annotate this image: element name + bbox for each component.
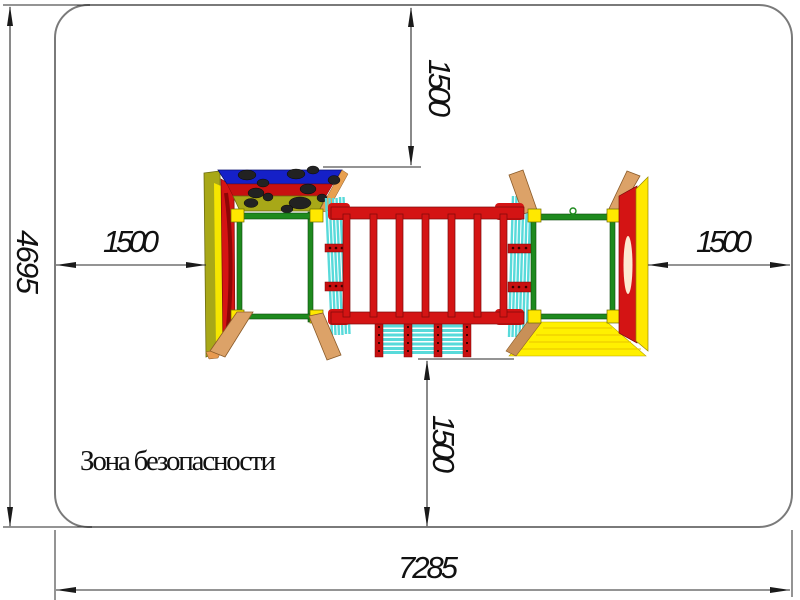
arrow-up-icon — [424, 360, 430, 380]
dim-clearance-right: 1500 — [648, 224, 790, 268]
dim-text-clearance-left: 1500 — [103, 224, 159, 259]
dim-overall-width: 7285 — [56, 550, 790, 593]
arrow-left-icon — [56, 587, 76, 593]
bridge-slats — [379, 326, 469, 353]
drawing-sheet: 4695 1500 1500 1500 1500 7285 Зона безоп… — [0, 0, 800, 600]
ladder-rungs — [343, 214, 507, 317]
dim-clearance-left: 1500 — [56, 224, 206, 268]
dim-clearance-bottom: 1500 — [424, 360, 461, 527]
arrow-left-icon — [56, 262, 76, 268]
dim-clearance-top: 1500 — [408, 7, 457, 166]
right-tower-panel-highlight — [624, 236, 633, 294]
left-tower — [204, 166, 350, 360]
arrow-down-icon — [7, 507, 13, 527]
dim-text-clearance-right: 1500 — [696, 224, 752, 259]
dim-text-clearance-bottom: 1500 — [426, 415, 461, 473]
dim-text-overall-width: 7285 — [398, 550, 459, 585]
left-tower-roof-red — [227, 184, 333, 196]
hanging-bridge — [375, 321, 471, 357]
arrow-right-icon — [186, 262, 206, 268]
right-tower-yellow-panel — [636, 177, 648, 351]
dim-text-overall-height: 4695 — [10, 230, 45, 295]
arrow-right-icon — [770, 587, 790, 593]
left-tower-frame — [231, 209, 323, 323]
right-tower-frame — [528, 208, 620, 323]
frame-hook — [570, 208, 576, 214]
arrow-up-icon — [408, 7, 414, 27]
arrow-down-icon — [408, 146, 414, 166]
left-tower-roof-blue — [218, 170, 342, 184]
right-tower — [506, 170, 648, 356]
dim-text-clearance-top: 1500 — [422, 59, 457, 117]
arrow-down-icon — [424, 507, 430, 527]
arrow-right-icon — [770, 262, 790, 268]
safety-zone-label: Зона безопасности — [80, 445, 276, 477]
arrow-up-icon — [7, 6, 13, 26]
drawing-canvas: 4695 1500 1500 1500 1500 7285 Зона безоп… — [0, 0, 800, 600]
arrow-left-icon — [648, 262, 668, 268]
dim-overall-height: 4695 — [7, 6, 45, 527]
monkey-bars — [328, 203, 524, 325]
